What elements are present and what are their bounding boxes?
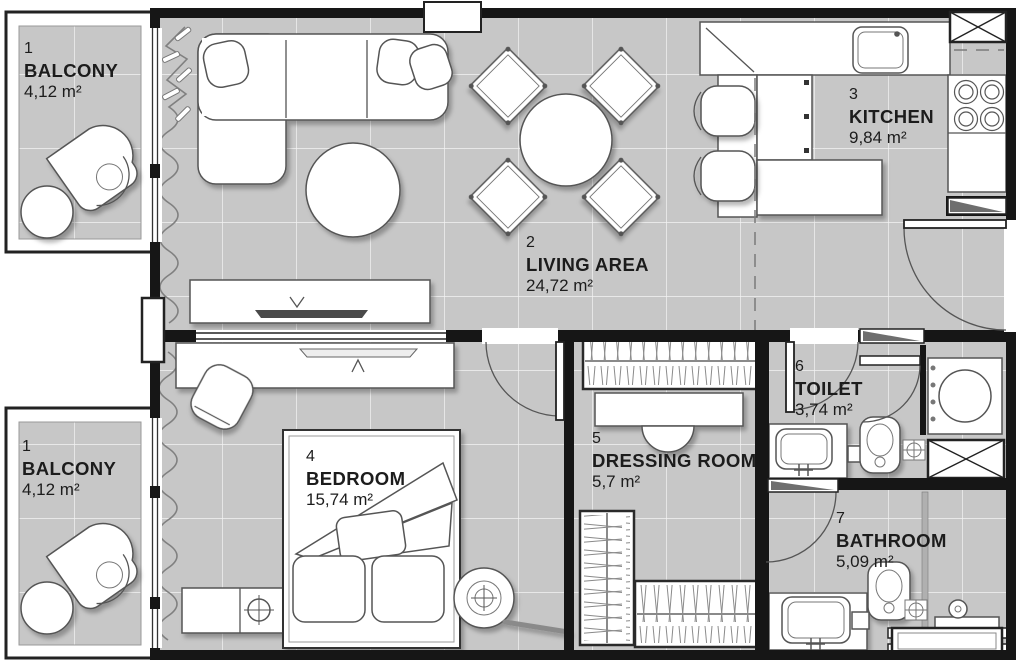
floor-plan: 1 BALCONY 4,12 m² 2 LIVING AREA 24,72 m²… (0, 0, 1024, 667)
wardrobe-vertical (580, 511, 634, 645)
washing-machine (928, 358, 1002, 434)
window (148, 418, 162, 648)
room-name: BALCONY (24, 61, 118, 81)
balcony-table (21, 186, 73, 238)
room-name: BATHROOM (836, 531, 947, 551)
room-label-dressing: 5 DRESSING ROOM 5,7 m² (592, 430, 757, 492)
wall-dressing-toilet (755, 330, 769, 652)
door-opening (790, 328, 858, 344)
wall-top (152, 8, 1016, 18)
room-number: 1 (22, 438, 116, 456)
entrance-opening (1004, 220, 1018, 332)
bar-stool (694, 86, 755, 136)
room-area: 3,74 m² (795, 401, 863, 420)
shaft (928, 440, 1004, 478)
room-area: 24,72 m² (526, 277, 649, 296)
room-name: KITCHEN (849, 107, 934, 127)
toilet-wc (860, 417, 900, 473)
room-number: 6 (795, 358, 863, 376)
pocket-door-kitchen (948, 198, 1006, 214)
kitchen-bar-return (757, 160, 882, 215)
room-number: 7 (836, 510, 947, 528)
tv-cabinet (190, 280, 430, 323)
room-number: 1 (24, 40, 118, 58)
room-area: 4,12 m² (22, 481, 116, 500)
kitchen-counter (700, 22, 950, 75)
room-name: DRESSING ROOM (592, 451, 757, 471)
room-label-living: 2 LIVING AREA 24,72 m² (526, 234, 649, 296)
bin (852, 612, 869, 629)
pocket-door-toilet (860, 329, 924, 343)
window (148, 28, 162, 242)
wall-stub (920, 345, 926, 435)
balcony-table (21, 582, 73, 634)
kitchen-sink (853, 27, 908, 73)
door-opening (482, 328, 558, 344)
room-area: 5,7 m² (592, 473, 757, 492)
middle-wall-glazing (196, 330, 446, 342)
room-number: 4 (306, 448, 405, 466)
wall-bottom (152, 650, 1016, 660)
floor-drain (905, 600, 927, 620)
room-number: 5 (592, 430, 757, 448)
room-area: 9,84 m² (849, 129, 934, 148)
bed-pillow (293, 556, 365, 622)
room-label-balcony-top: 1 BALCONY 4,12 m² (24, 40, 118, 102)
kitchen-cabinet (757, 75, 812, 160)
wall-pilaster (424, 2, 481, 32)
room-label-bathroom: 7 BATHROOM 5,09 m² (836, 510, 947, 572)
room-label-kitchen: 3 KITCHEN 9,84 m² (849, 86, 934, 148)
room-number: 3 (849, 86, 934, 104)
room-area: 5,09 m² (836, 553, 947, 572)
desk-tv (300, 349, 417, 357)
room-name: BALCONY (22, 459, 116, 479)
room-number: 2 (526, 234, 649, 252)
dining-table (520, 94, 612, 186)
room-name: LIVING AREA (526, 255, 649, 275)
coffee-table (306, 143, 400, 237)
room-area: 4,12 m² (24, 83, 118, 102)
shaft-top (950, 12, 1006, 42)
floor-drain (903, 440, 925, 460)
room-name: TOILET (795, 379, 863, 399)
room-area: 15,74 m² (306, 491, 405, 510)
nightstand (182, 588, 283, 633)
room-label-toilet: 6 TOILET 3,74 m² (795, 358, 863, 420)
stove (948, 75, 1006, 192)
bar-stool (694, 151, 755, 201)
wall-bedroom-dressing (564, 342, 574, 652)
toilet-vanity (769, 424, 847, 478)
wall-pier (142, 298, 164, 362)
bed-pillow-small (335, 510, 406, 563)
room-label-balcony-bottom: 1 BALCONY 4,12 m² (22, 438, 116, 500)
tv-screen (255, 310, 368, 318)
room-name: BEDROOM (306, 469, 405, 489)
room-label-bedroom: 4 BEDROOM 15,74 m² (306, 448, 405, 510)
bed-pillow (372, 556, 444, 622)
wardrobe-bottom (635, 581, 757, 647)
